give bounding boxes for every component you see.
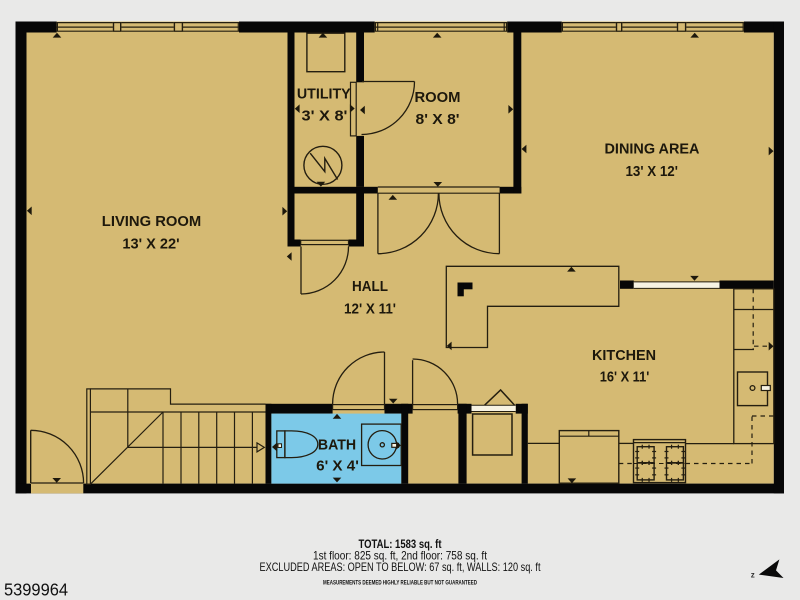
svg-text:BATH: BATH (318, 437, 356, 454)
svg-text:LIVING ROOM: LIVING ROOM (102, 213, 201, 230)
svg-text:8' X 8': 8' X 8' (416, 111, 460, 128)
svg-text:13' X 12': 13' X 12' (625, 163, 678, 180)
svg-text:z: z (751, 571, 755, 580)
svg-text:ROOM: ROOM (415, 89, 461, 106)
svg-text:UTILITY: UTILITY (297, 85, 351, 102)
svg-text:6' X 4': 6' X 4' (316, 457, 359, 474)
svg-text:MEASUREMENTS DEEMED HIGHLY REL: MEASUREMENTS DEEMED HIGHLY RELIABLE BUT … (323, 581, 477, 587)
svg-text:KITCHEN: KITCHEN (592, 347, 656, 364)
svg-text:13' X 22': 13' X 22' (122, 236, 179, 253)
svg-text:16' X 11': 16' X 11' (600, 369, 650, 386)
svg-text:12' X 11': 12' X 11' (344, 300, 396, 317)
svg-text:EXCLUDED AREAS: OPEN TO BELOW:: EXCLUDED AREAS: OPEN TO BELOW: 67 sq. ft… (260, 560, 542, 574)
svg-text:5399964: 5399964 (4, 580, 68, 600)
svg-text:HALL: HALL (352, 278, 388, 295)
svg-text:3' X 8': 3' X 8' (302, 108, 348, 125)
svg-text:DINING AREA: DINING AREA (605, 141, 700, 158)
